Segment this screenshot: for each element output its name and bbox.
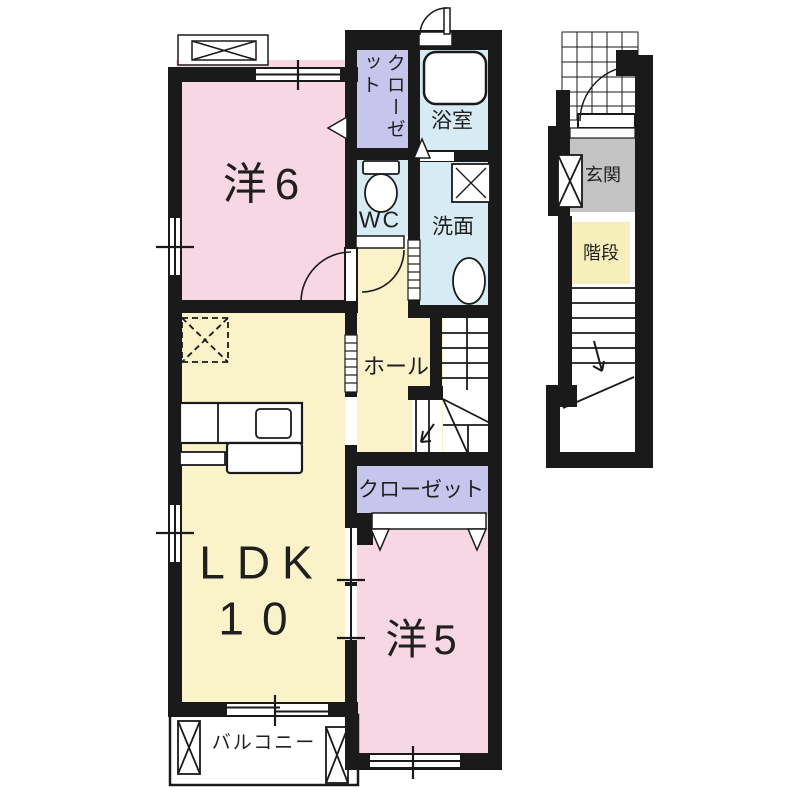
balcony-xbox-right-icon bbox=[326, 727, 348, 783]
shoe-cabinet-icon bbox=[558, 155, 582, 207]
room-label-washroom: 洗面 bbox=[432, 215, 474, 238]
room-label-bathroom: 浴室 bbox=[431, 109, 473, 132]
room-label-closet-lower: クローゼット bbox=[358, 478, 484, 501]
room-label-ldk-size: 10 bbox=[218, 594, 305, 645]
room-hall-upper bbox=[351, 248, 411, 318]
room-label-balcony: バルコニー bbox=[212, 734, 317, 755]
sliding-door-washroom-icon bbox=[408, 240, 420, 300]
room-label-western-5: 洋5 bbox=[385, 617, 462, 663]
room-label-staircase: 階段 bbox=[583, 244, 619, 264]
bathtub-icon bbox=[424, 52, 486, 104]
toilet-icon bbox=[363, 161, 399, 212]
floor-plan-page: 洋6 クローゼット 浴室 WC 洗面 ホール クローゼット LDK 10 洋5 … bbox=[0, 0, 800, 800]
stairs-1f-arrow-icon bbox=[593, 341, 604, 371]
washbasin-icon bbox=[453, 258, 485, 304]
room-label-western-6: 洋6 bbox=[223, 161, 307, 209]
balcony-xbox-left-icon bbox=[178, 721, 200, 774]
room-label-closet-upper: クローゼット bbox=[356, 53, 405, 141]
door-gap-wc bbox=[356, 236, 404, 248]
room-label-hall: ホール bbox=[363, 355, 429, 379]
room-ldk bbox=[176, 305, 346, 710]
kitchen-counter-icon bbox=[180, 403, 302, 473]
room-label-toilet: WC bbox=[359, 207, 401, 232]
room-label-entrance: 玄関 bbox=[585, 166, 621, 186]
opening-hall-ldk bbox=[345, 397, 357, 445]
room-label-ldk: LDK bbox=[199, 538, 324, 589]
sliding-door-hall-ldk-icon bbox=[345, 335, 357, 392]
ac-unit-platform-icon bbox=[178, 35, 268, 65]
washer-pan-icon bbox=[452, 164, 490, 202]
